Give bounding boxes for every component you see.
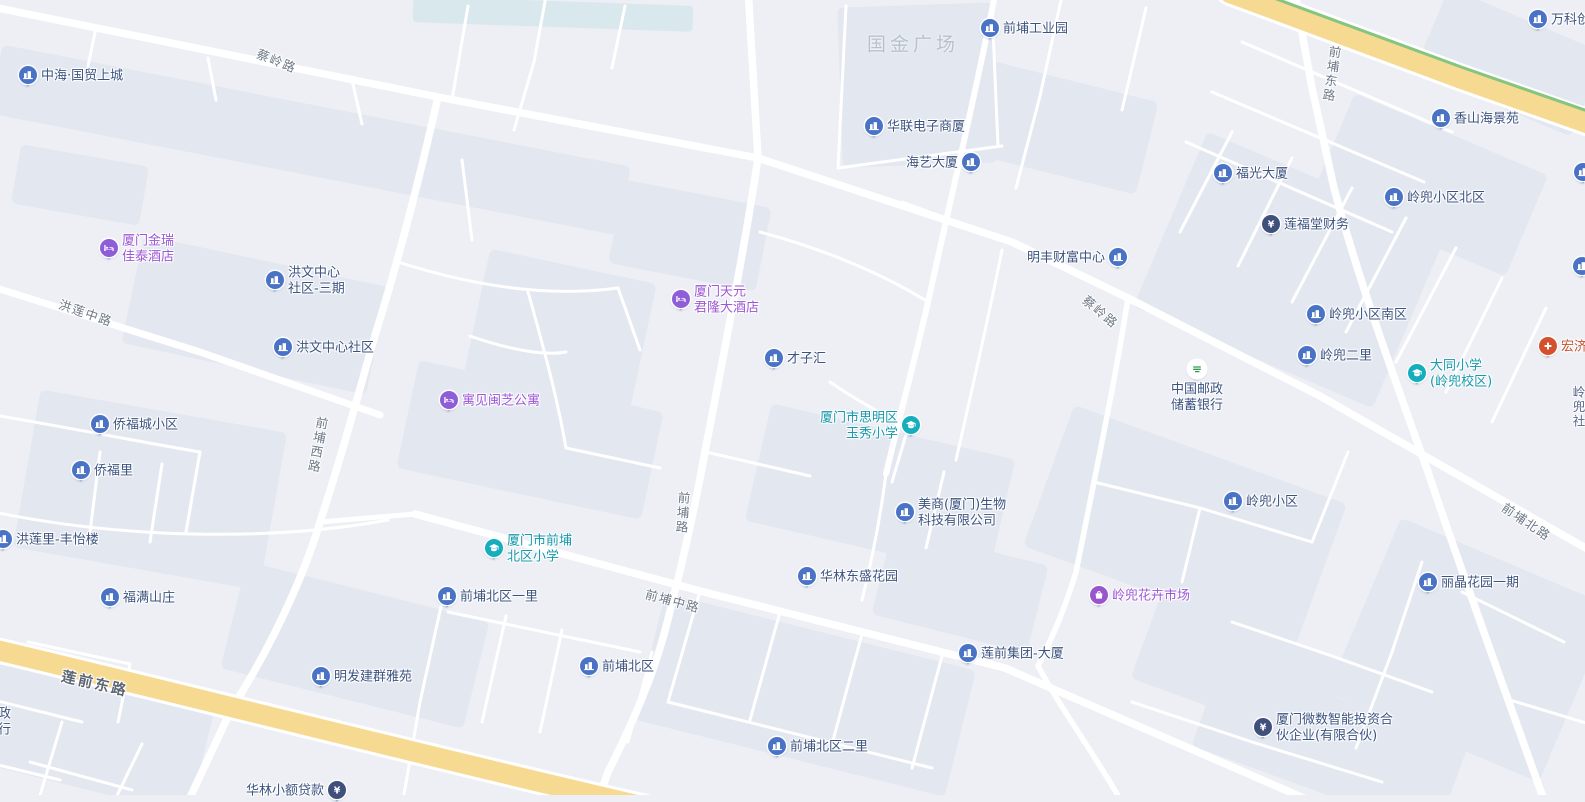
poi-label: 洪莲里-丰怡楼	[16, 532, 99, 548]
poi-label-line: 海艺大厦	[906, 155, 958, 171]
poi-label-line: 储蓄银行	[1171, 398, 1223, 414]
poi-label: 华林小额贷款	[246, 783, 324, 799]
poi-label: 万科创	[1551, 12, 1585, 28]
school-pin-icon	[902, 416, 920, 437]
building-pin-icon	[312, 667, 330, 688]
building-pin-icon	[798, 567, 816, 588]
poi-label: 岭兜小区南区	[1329, 307, 1407, 323]
poi-label-line: 岭兜小区南区	[1329, 307, 1407, 323]
poi-label: 福光大厦	[1236, 166, 1288, 182]
poi-label-line: 中国邮政	[1171, 382, 1223, 398]
building-pin-icon	[896, 503, 914, 524]
poi-label: 明丰财富中心	[1027, 250, 1105, 266]
hotel-pin-icon	[100, 239, 118, 260]
finance-pin-icon: ¥	[328, 781, 346, 802]
poi-label-line: 厦门天元	[694, 285, 759, 301]
building-pin-icon	[865, 117, 883, 138]
poi-label: 厦门微数智能投资合伙企业(有限合伙)	[1276, 713, 1393, 744]
poi-label-line: 寓见闽芝公寓	[462, 393, 540, 409]
market-pin-icon	[1090, 586, 1108, 607]
poi-label-line: 岭兜小区	[1246, 494, 1298, 510]
poi-label: 岭兜花卉市场	[1112, 588, 1190, 604]
map-canvas[interactable]	[0, 0, 1585, 795]
hotel-pin-icon	[672, 290, 690, 311]
poi-label-line: 社区-三期	[288, 281, 345, 297]
building-pin-icon	[959, 644, 977, 665]
building-pin-icon	[580, 657, 598, 678]
poi-label-line: 中海·国贸上城	[41, 68, 123, 84]
poi-label: 才子汇	[787, 351, 826, 367]
poi-label-line: 邮政	[0, 707, 11, 723]
svg-text:¥: ¥	[1268, 219, 1275, 230]
post-pin-icon	[1188, 360, 1206, 381]
building-pin-icon	[1432, 109, 1450, 130]
poi-label-line: 香山海景苑	[1454, 111, 1519, 127]
poi-label: 厦门金瑞佳泰酒店	[122, 234, 174, 265]
poi-label-line: 福满山庄	[123, 590, 175, 606]
poi-label: 侨福里	[94, 463, 133, 479]
poi-label: 岭兜小区北区	[1407, 190, 1485, 206]
building-blocks	[0, 0, 1585, 795]
poi-label-line: 岭兜花卉市场	[1112, 588, 1190, 604]
road-label: 前埔路	[671, 491, 693, 536]
building-pin-icon	[765, 349, 783, 370]
building-pin-icon	[1298, 346, 1316, 367]
finance-pin-icon: ¥	[1262, 215, 1280, 236]
poi-label-line: 厦门金瑞	[122, 234, 174, 250]
poi-label: 前埔北区一里	[460, 589, 538, 605]
building-pin-icon	[438, 587, 456, 608]
poi-label: 寓见闽芝公寓	[462, 393, 540, 409]
building-pin-icon	[19, 66, 37, 87]
poi-label-line: 才子汇	[787, 351, 826, 367]
building-pin-icon	[72, 461, 90, 482]
poi-label-line: 玉秀小学	[820, 426, 898, 442]
poi-label: 厦门天元君隆大酒店	[694, 285, 759, 316]
poi-label-line: 厦门微数智能投资合	[1276, 713, 1393, 729]
building-pin-icon	[1529, 10, 1547, 31]
poi-label: 明发建群雅苑	[334, 669, 412, 685]
building-pin-icon	[91, 415, 109, 436]
building-pin-icon	[1307, 305, 1325, 326]
school-pin-icon	[1408, 364, 1426, 385]
poi-label-line: 万科创	[1551, 12, 1585, 28]
building-pin-icon	[1574, 163, 1585, 184]
poi-label-line: 洪莲里-丰怡楼	[16, 532, 99, 548]
poi-label-line: 前埔北区二里	[790, 739, 868, 755]
poi-label: 洪文中心社区-三期	[288, 266, 345, 297]
poi-label: 海艺大厦	[906, 155, 958, 171]
poi-label: 丽晶花园一期	[1441, 575, 1519, 591]
poi-label-line: 华联电子商厦	[887, 119, 965, 135]
svg-text:¥: ¥	[1260, 722, 1267, 733]
poi-label: 岭兜二里	[1320, 348, 1372, 364]
poi-label: 莲福堂财务	[1284, 217, 1349, 233]
poi-label-line: 伙企业(有限合伙)	[1276, 728, 1393, 744]
poi-label: 宏济	[1561, 339, 1585, 355]
building-pin-icon	[768, 737, 786, 758]
poi-label: 邮政银行	[0, 707, 11, 738]
building-pin-icon	[274, 338, 292, 359]
area-label: 国金广场	[867, 30, 959, 57]
poi-label: 厦门市思明区玉秀小学	[820, 411, 898, 442]
poi-label: 香山海景苑	[1454, 111, 1519, 127]
poi-label: 福满山庄	[123, 590, 175, 606]
poi-label: 前埔工业园	[1003, 21, 1068, 37]
poi-label-line: 华林小额贷款	[246, 783, 324, 799]
building-pin-icon	[0, 530, 12, 551]
poi-label-line: 前埔工业园	[1003, 21, 1068, 37]
poi-label-line: 丽晶花园一期	[1441, 575, 1519, 591]
road-label: 岭兜社	[1569, 385, 1585, 429]
poi-label: 莲前集团-大厦	[981, 646, 1064, 662]
poi-label-line: 华林东盛花园	[820, 569, 898, 585]
poi-label: 前埔北区	[602, 659, 654, 675]
building-pin-icon	[962, 153, 980, 174]
poi-label: 中国邮政储蓄银行	[1171, 382, 1223, 413]
poi-label-line: 厦门市思明区	[820, 411, 898, 427]
poi-label-line: 前埔北区一里	[460, 589, 538, 605]
poi-label-line: 宏济	[1561, 339, 1585, 355]
poi-label-line: 明发建群雅苑	[334, 669, 412, 685]
poi-label-line: 莲前集团-大厦	[981, 646, 1064, 662]
poi-label-line: (岭兜校区)	[1430, 374, 1492, 390]
building-pin-icon	[1109, 248, 1127, 269]
poi-label-line: 明丰财富中心	[1027, 250, 1105, 266]
map-viewport[interactable]: 中海·国贸上城前埔工业园万科创华联电子商厦海艺大厦香山海景苑福光大厦岭兜小区北区…	[0, 0, 1585, 795]
poi-label-line: 银行	[0, 722, 11, 738]
poi-label: 岭兜小区	[1246, 494, 1298, 510]
poi-label-line: 洪文中心社区	[296, 340, 374, 356]
building-pin-icon	[1214, 164, 1232, 185]
poi-label: 中海·国贸上城	[41, 68, 123, 84]
poi-label-line: 侨福里	[94, 463, 133, 479]
poi-label-line: 科技有限公司	[918, 513, 1006, 529]
finance-pin-icon: ¥	[1254, 718, 1272, 739]
building-pin-icon	[1419, 573, 1437, 594]
poi-label-line: 君隆大酒店	[694, 300, 759, 316]
svg-text:¥: ¥	[334, 785, 341, 796]
building-pin-icon	[1573, 257, 1585, 278]
school-pin-icon	[485, 539, 503, 560]
poi-label-line: 美商(厦门)生物	[918, 498, 1006, 514]
poi-label: 美商(厦门)生物科技有限公司	[918, 498, 1006, 529]
hotel-pin-icon	[440, 391, 458, 412]
poi-label-line: 佳泰酒店	[122, 249, 174, 265]
building-pin-icon	[266, 271, 284, 292]
poi-label-line: 前埔北区	[602, 659, 654, 675]
building-pin-icon	[981, 19, 999, 40]
poi-label-line: 北区小学	[507, 549, 572, 565]
poi-label-line: 侨福城小区	[113, 417, 178, 433]
building-pin-icon	[1224, 492, 1242, 513]
building-pin-icon	[1385, 188, 1403, 209]
poi-label: 前埔北区二里	[790, 739, 868, 755]
poi-label-line: 岭兜小区北区	[1407, 190, 1485, 206]
poi-label: 华林东盛花园	[820, 569, 898, 585]
poi-label: 洪文中心社区	[296, 340, 374, 356]
poi-label: 大同小学(岭兜校区)	[1430, 359, 1492, 390]
poi-label-line: 厦门市前埔	[507, 534, 572, 550]
poi-label: 厦门市前埔北区小学	[507, 534, 572, 565]
hospital-pin-icon	[1539, 337, 1557, 358]
poi-label: 侨福城小区	[113, 417, 178, 433]
poi-label-line: 岭兜二里	[1320, 348, 1372, 364]
poi-label-line: 莲福堂财务	[1284, 217, 1349, 233]
building-pin-icon	[101, 588, 119, 609]
poi-label-line: 福光大厦	[1236, 166, 1288, 182]
poi-label: 华联电子商厦	[887, 119, 965, 135]
poi-label-line: 洪文中心	[288, 266, 345, 282]
poi-label-line: 大同小学	[1430, 359, 1492, 375]
